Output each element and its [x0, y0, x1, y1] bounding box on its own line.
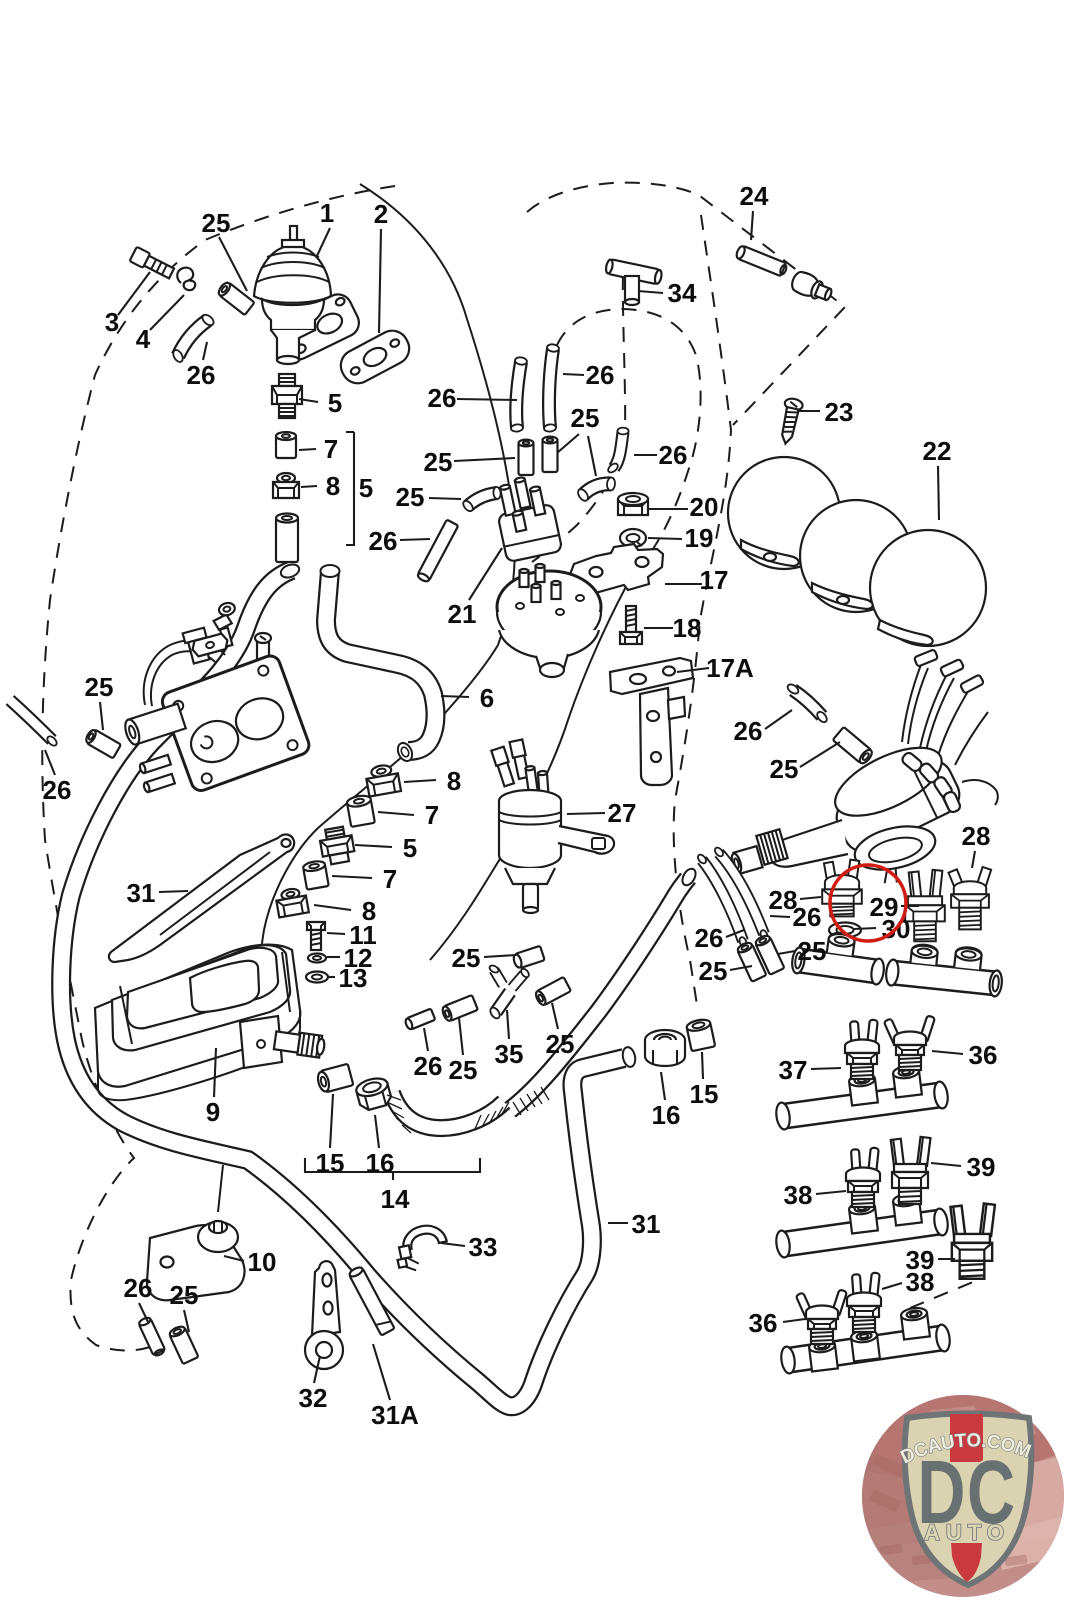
svg-text:25: 25: [770, 754, 799, 784]
svg-text:13: 13: [339, 963, 368, 993]
svg-text:23: 23: [825, 397, 854, 427]
svg-text:8: 8: [447, 766, 461, 796]
svg-text:9: 9: [206, 1097, 220, 1127]
svg-text:25: 25: [424, 447, 453, 477]
svg-text:36: 36: [749, 1308, 778, 1338]
svg-text:26: 26: [586, 360, 615, 390]
svg-text:26: 26: [369, 526, 398, 556]
svg-text:36: 36: [969, 1040, 998, 1070]
svg-text:18: 18: [673, 613, 702, 643]
svg-text:25: 25: [396, 482, 425, 512]
svg-text:17: 17: [700, 565, 729, 595]
svg-text:31A: 31A: [371, 1400, 419, 1430]
svg-text:32: 32: [299, 1383, 328, 1413]
svg-text:26: 26: [124, 1273, 153, 1303]
svg-text:25: 25: [452, 943, 481, 973]
svg-text:28: 28: [962, 821, 991, 851]
svg-text:20: 20: [690, 492, 719, 522]
svg-text:21: 21: [448, 599, 477, 629]
svg-text:1: 1: [320, 198, 334, 228]
svg-text:8: 8: [326, 471, 340, 501]
svg-text:25: 25: [571, 403, 600, 433]
svg-text:14: 14: [381, 1184, 410, 1214]
svg-text:26: 26: [793, 902, 822, 932]
svg-text:7: 7: [324, 434, 338, 464]
svg-text:31: 31: [127, 878, 156, 908]
svg-text:25: 25: [699, 956, 728, 986]
svg-text:26: 26: [695, 923, 724, 953]
svg-text:6: 6: [480, 683, 494, 713]
svg-text:38: 38: [784, 1180, 813, 1210]
svg-text:31: 31: [632, 1209, 661, 1239]
svg-text:22: 22: [923, 436, 952, 466]
svg-text:AUTO: AUTO: [924, 1520, 1010, 1545]
svg-text:4: 4: [136, 324, 151, 354]
svg-text:38: 38: [906, 1267, 935, 1297]
svg-text:25: 25: [85, 672, 114, 702]
svg-text:24: 24: [740, 181, 769, 211]
svg-text:34: 34: [668, 278, 697, 308]
svg-text:5: 5: [403, 833, 417, 863]
svg-text:3: 3: [105, 307, 119, 337]
svg-text:39: 39: [967, 1152, 996, 1182]
svg-text:10: 10: [248, 1247, 277, 1277]
svg-text:26: 26: [43, 775, 72, 805]
svg-text:26: 26: [428, 383, 457, 413]
svg-text:19: 19: [685, 523, 714, 553]
svg-text:16: 16: [652, 1100, 681, 1130]
svg-text:35: 35: [495, 1039, 524, 1069]
svg-text:26: 26: [659, 440, 688, 470]
svg-text:25: 25: [170, 1280, 199, 1310]
svg-text:26: 26: [734, 716, 763, 746]
svg-text:16: 16: [366, 1148, 395, 1178]
svg-text:2: 2: [374, 199, 388, 229]
svg-text:17A: 17A: [706, 653, 754, 683]
svg-text:5: 5: [328, 388, 342, 418]
svg-text:25: 25: [798, 936, 827, 966]
svg-text:26: 26: [414, 1051, 443, 1081]
svg-text:25: 25: [449, 1055, 478, 1085]
svg-text:7: 7: [425, 800, 439, 830]
svg-text:15: 15: [690, 1079, 719, 1109]
svg-text:37: 37: [779, 1055, 808, 1085]
svg-text:7: 7: [383, 864, 397, 894]
svg-text:25: 25: [202, 208, 231, 238]
svg-text:25: 25: [546, 1029, 575, 1059]
svg-text:5: 5: [359, 473, 373, 503]
svg-text:33: 33: [469, 1232, 498, 1262]
svg-text:27: 27: [608, 798, 637, 828]
svg-text:15: 15: [316, 1148, 345, 1178]
svg-text:26: 26: [187, 360, 216, 390]
